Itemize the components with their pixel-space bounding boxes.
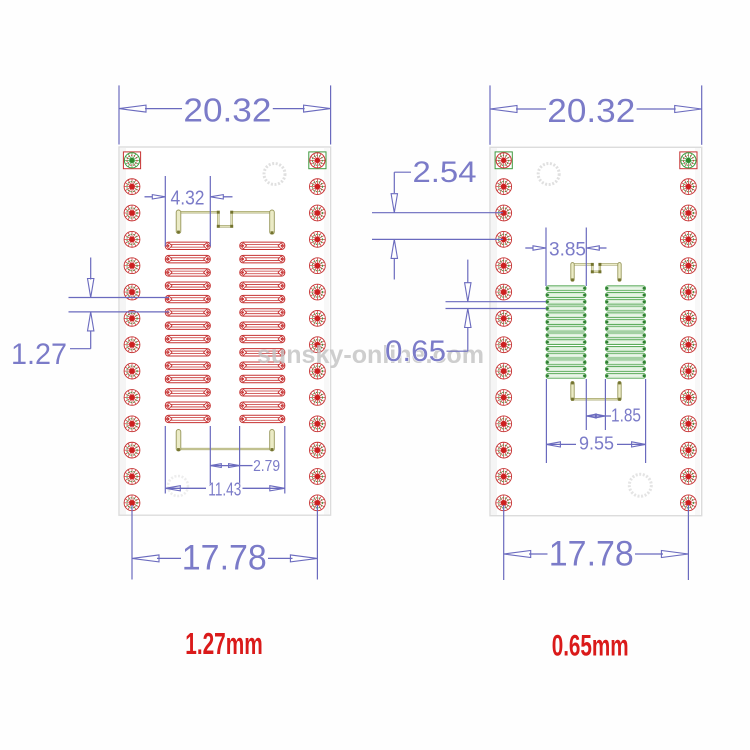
svg-text:20.32: 20.32: [547, 92, 635, 129]
svg-text:20.32: 20.32: [183, 92, 271, 129]
svg-text:17.78: 17.78: [549, 535, 634, 574]
svg-text:1.27: 1.27: [11, 338, 67, 371]
svg-text:2.54: 2.54: [413, 156, 477, 189]
svg-text:0.65: 0.65: [385, 335, 446, 368]
svg-text:17.78: 17.78: [182, 539, 267, 578]
svg-text:2.79: 2.79: [253, 458, 280, 475]
svg-text:1.27mm: 1.27mm: [185, 626, 263, 661]
svg-text:0.65mm: 0.65mm: [552, 630, 629, 663]
svg-text:9.55: 9.55: [579, 434, 614, 454]
svg-text:sunsky-online.com: sunsky-online.com: [257, 341, 484, 369]
svg-text:1.85: 1.85: [611, 405, 641, 425]
svg-text:4.32: 4.32: [171, 187, 205, 209]
svg-text:11.43: 11.43: [208, 480, 241, 500]
svg-text:3.85: 3.85: [549, 238, 586, 260]
